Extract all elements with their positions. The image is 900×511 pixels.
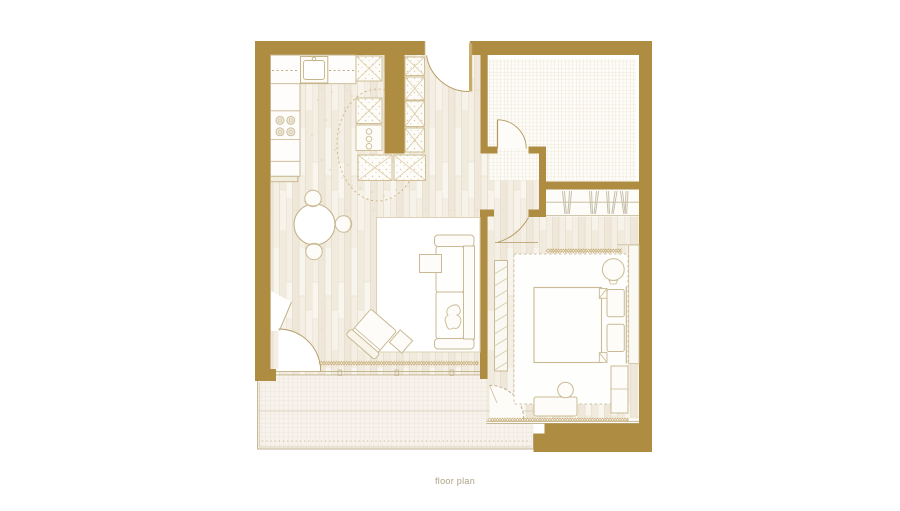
svg-text:floor plan: floor plan	[435, 476, 475, 486]
